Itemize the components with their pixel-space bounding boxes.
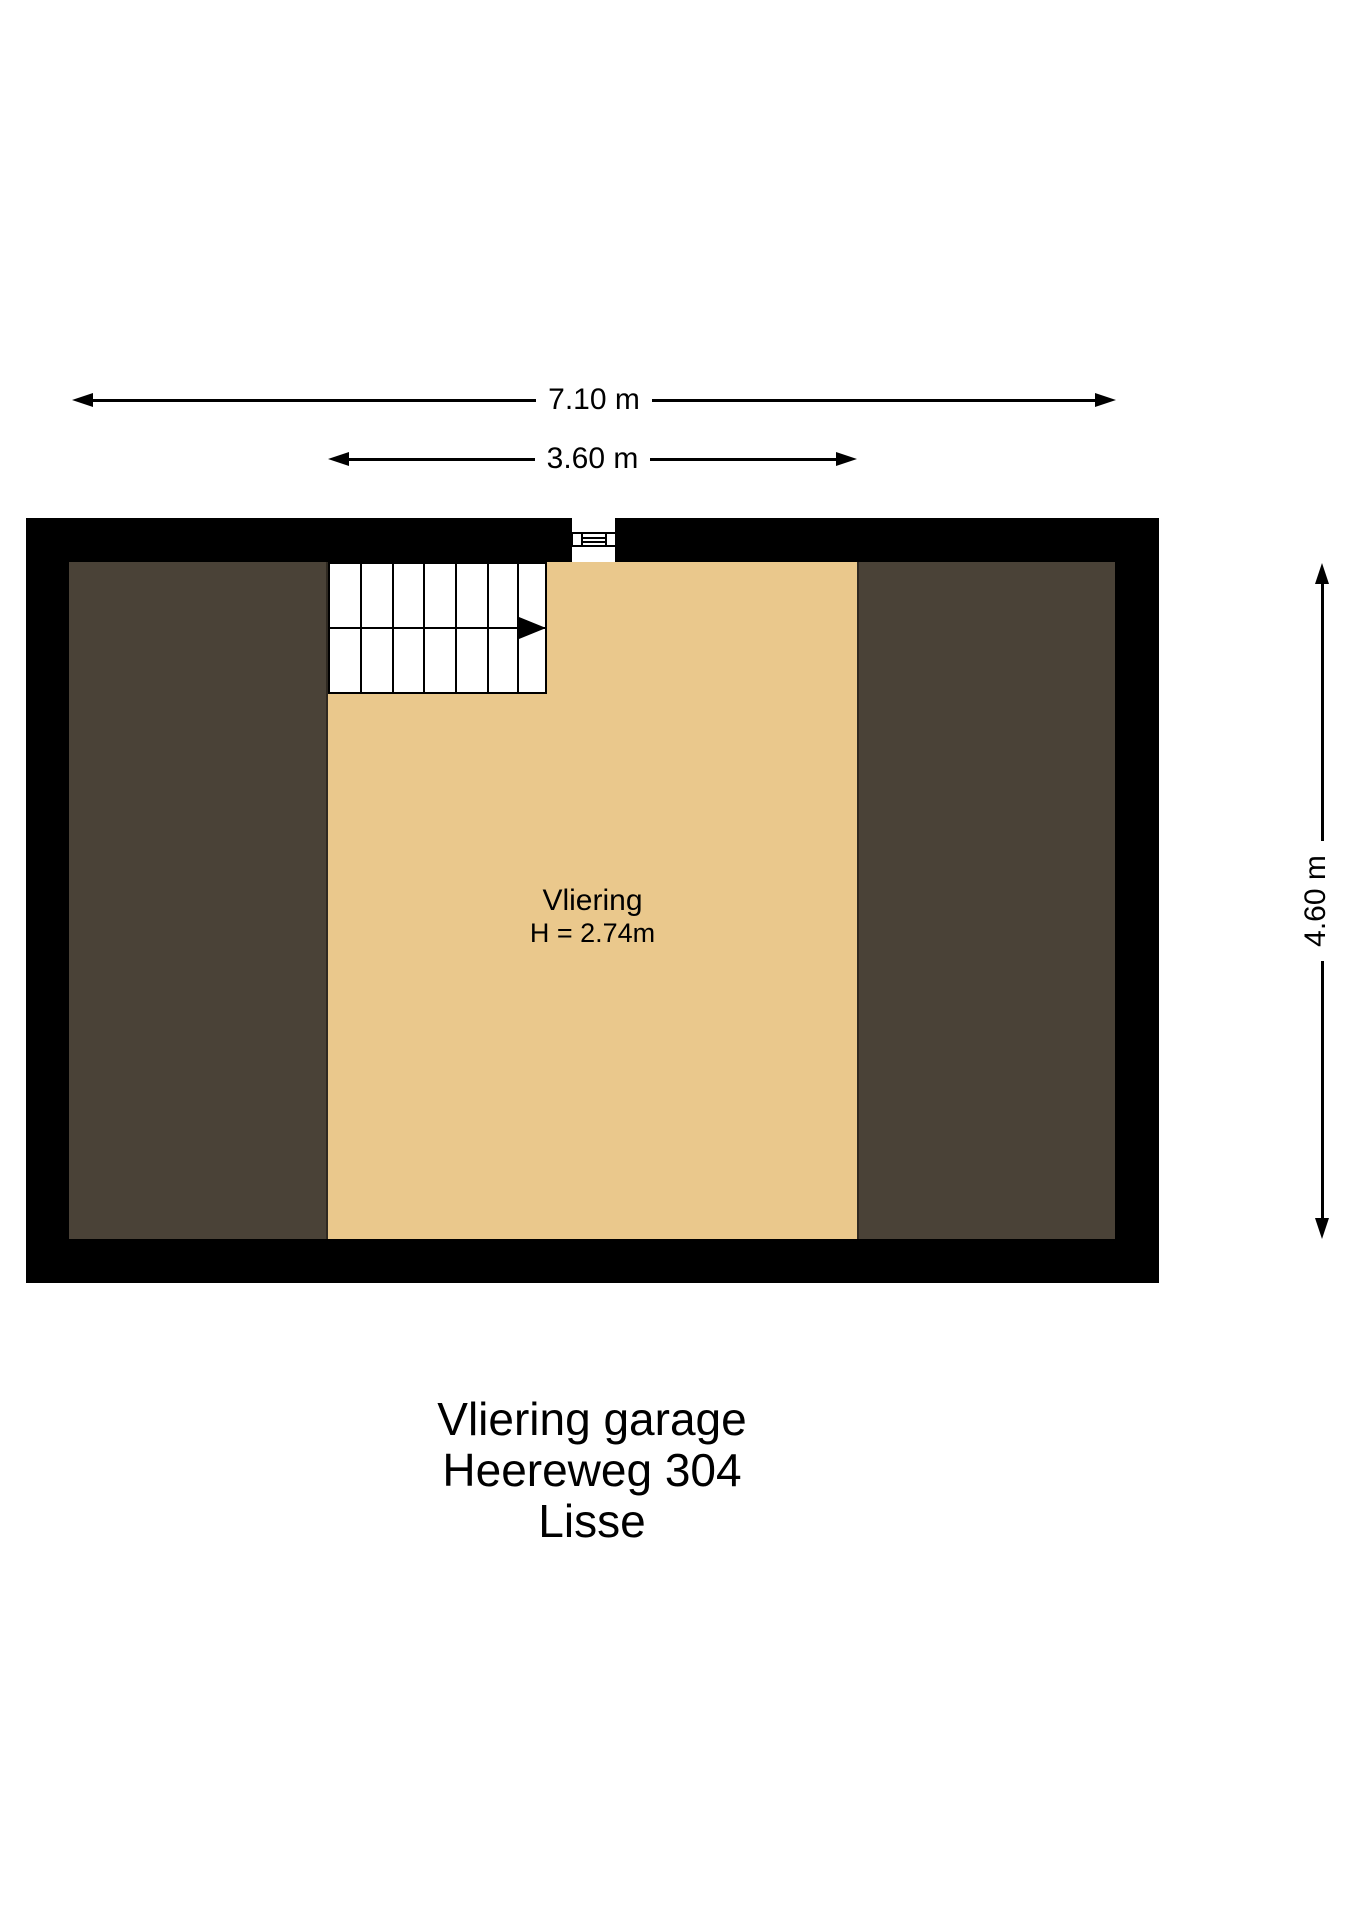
dimension-line [1321,961,1324,1218]
dimension-line [650,458,836,461]
attic-floor-right [859,562,1115,1239]
dimension-line [652,399,1095,402]
arrow-up-icon [1315,563,1329,584]
arrow-right-icon [1095,393,1116,407]
arrow-down-icon [1315,1218,1329,1239]
dimension-outer-width: 7.10 m [72,389,1116,411]
room-name: Vliering [328,884,857,918]
stairs-direction-arrow-icon [519,617,546,639]
dimension-inner-width-label: 3.60 m [547,444,639,474]
dimension-line [349,458,535,461]
plan-title: Vliering garage Heereweg 304 Lisse [242,1394,942,1547]
arrow-left-icon [328,452,349,466]
room-height-note: H = 2.74m [328,918,857,949]
title-line-3: Lisse [242,1496,942,1547]
dimension-side-height: 4.60 m [1304,563,1340,1239]
title-line-1: Vliering garage [242,1394,942,1445]
dimension-line [1321,584,1324,841]
title-line-2: Heereweg 304 [242,1445,942,1496]
dimension-inner-width: 3.60 m [328,448,857,470]
dimension-line [93,399,536,402]
stairs-direction-line [330,627,545,629]
floorplan-page: 7.10 m 3.60 m [0,0,1358,1920]
arrow-right-icon [836,452,857,466]
arrow-left-icon [72,393,93,407]
hatch-icon [571,532,617,547]
room-label: Vliering H = 2.74m [328,884,857,949]
attic-floor-left [69,562,326,1239]
dimension-outer-width-label: 7.10 m [548,385,640,415]
stairs [328,562,547,694]
dimension-side-height-label: 4.60 m [1301,855,1331,947]
